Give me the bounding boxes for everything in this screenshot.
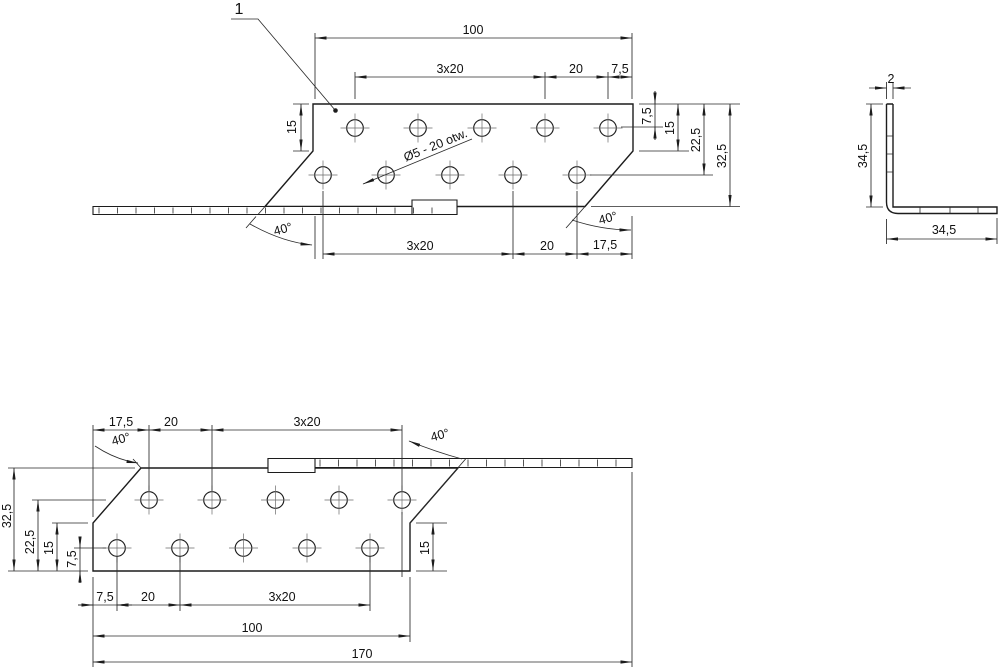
label-170: 170 — [352, 647, 373, 661]
label-7-5-top: 7,5 — [611, 62, 628, 76]
extension-lines — [866, 82, 997, 244]
plate-outline — [93, 468, 458, 571]
label-40-right: 40° — [597, 209, 619, 227]
label-width: 34,5 — [932, 223, 956, 237]
extension-lines — [293, 33, 740, 259]
angle-arc-left — [95, 446, 138, 463]
side-view: 2 34,5 34,5 — [856, 72, 997, 244]
item-leader-line — [231, 19, 335, 110]
hole-pattern — [109, 492, 411, 557]
label-40-left: 40° — [272, 220, 294, 238]
label-7-5-left: 7,5 — [65, 550, 79, 567]
label-17-5-bottom: 17,5 — [593, 238, 617, 252]
cut-extension-right — [566, 207, 585, 229]
label-3x20-bottom: 3x20 — [406, 239, 433, 253]
label-15-left: 15 — [285, 120, 299, 134]
label-100: 100 — [242, 621, 263, 635]
plate-outline — [265, 104, 633, 207]
label-17-5-top: 17,5 — [109, 415, 133, 429]
label-32-5-right: 32,5 — [715, 144, 729, 168]
flange-strip — [93, 207, 457, 215]
technical-drawing-canvas: 100 3x20 20 7,5 15 7,5 15 22,5 32,5 Ø5 -… — [0, 0, 1000, 667]
label-15-left: 15 — [42, 541, 56, 555]
label-7-5-bottom: 7,5 — [96, 590, 113, 604]
label-20-bottom: 20 — [540, 239, 554, 253]
label-20-top: 20 — [164, 415, 178, 429]
label-20-bottom: 20 — [141, 590, 155, 604]
label-40-left: 40° — [110, 430, 132, 448]
item-number-label: 1 — [235, 1, 244, 18]
label-15-right: 15 — [663, 121, 677, 135]
label-15-right: 15 — [418, 541, 432, 555]
bottom-view: 17,5 20 3x20 40° 40° 32,5 22,5 15 7,5 15… — [0, 415, 632, 667]
label-3x20-top: 3x20 — [436, 62, 463, 76]
label-thickness: 2 — [888, 72, 895, 86]
flange-strip-end — [268, 459, 315, 473]
cut-extension-left — [133, 459, 141, 468]
label-22-5-left: 22,5 — [23, 530, 37, 554]
label-7-5-right: 7,5 — [640, 107, 654, 124]
label-20-top: 20 — [569, 62, 583, 76]
top-view: 100 3x20 20 7,5 15 7,5 15 22,5 32,5 Ø5 -… — [93, 1, 740, 259]
label-100: 100 — [463, 23, 484, 37]
profile-outline — [887, 104, 998, 214]
label-3x20-top: 3x20 — [293, 415, 320, 429]
item-leader-dot — [333, 108, 338, 113]
hole-pattern — [315, 120, 617, 184]
flange-strip — [268, 459, 632, 468]
profile-ticks — [887, 136, 979, 214]
angle-bracket-drawing: 100 3x20 20 7,5 15 7,5 15 22,5 32,5 Ø5 -… — [0, 0, 1000, 667]
angle-arc-right — [409, 441, 462, 459]
label-3x20-bottom: 3x20 — [268, 590, 295, 604]
label-40-right: 40° — [429, 426, 451, 444]
label-32-5-left: 32,5 — [0, 504, 14, 528]
label-height: 34,5 — [856, 144, 870, 168]
flange-strip-end — [412, 200, 457, 215]
label-22-5-right: 22,5 — [689, 128, 703, 152]
